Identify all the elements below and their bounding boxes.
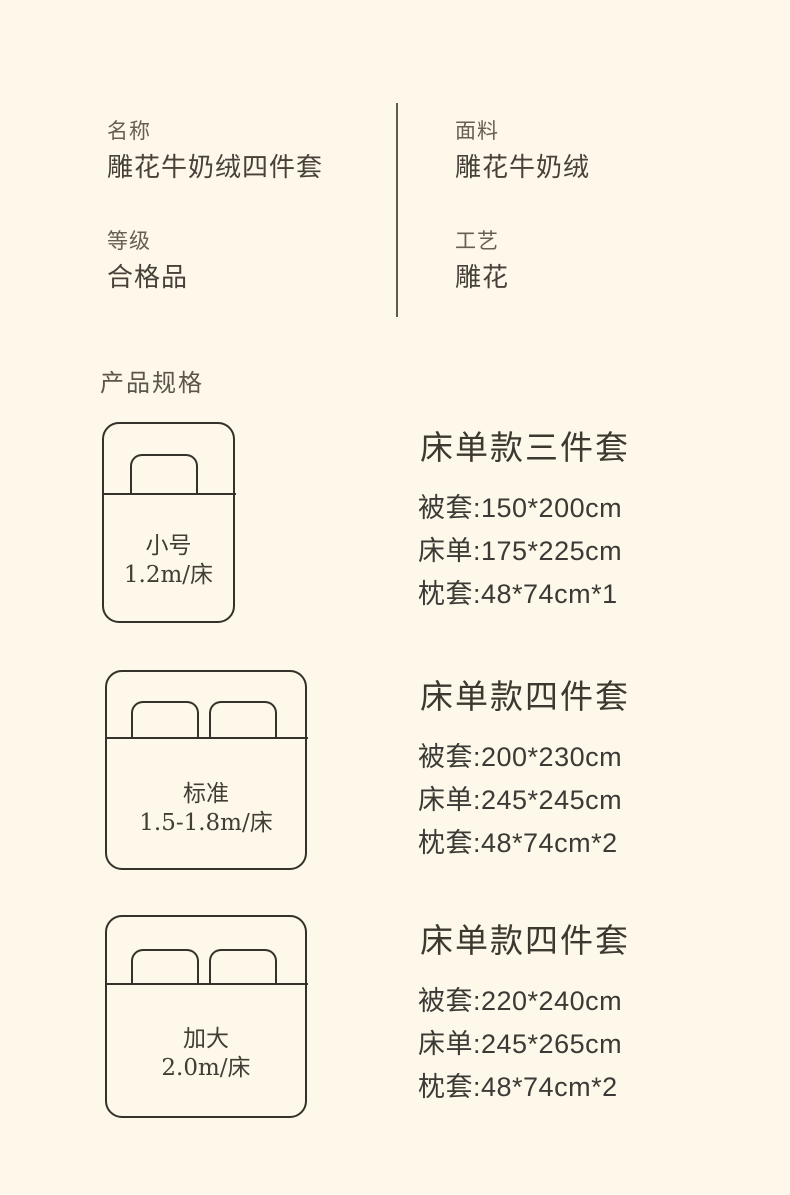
spec-item-duvet: 被套:200*230cm [418,736,632,779]
attribute-column-left: 名称 雕花牛奶绒四件套 等级 合格品 [107,120,323,340]
quilt-line [102,493,236,496]
spec-item-sheet: 床单:175*225cm [418,530,632,573]
spec-item-duvet: 被套:220*240cm [418,980,632,1023]
attr-label: 名称 [107,120,323,143]
attr-value: 合格品 [107,263,323,293]
attr-group-craft: 工艺 雕花 [455,230,590,293]
spec-block-three-piece: 床单款三件套 被套:150*200cm 床单:175*225cm 枕套:48*7… [418,429,632,616]
attr-group-grade: 等级 合格品 [107,230,323,293]
bed-diagram-small: 小号 1.2m/床 [102,422,235,623]
bed-size-spec: 2.0m/床 [107,1054,305,1083]
product-spec-panel: 名称 雕花牛奶绒四件套 等级 合格品 面料 雕花牛奶绒 工艺 雕花 产品规格 小… [0,0,790,1195]
quilt-line [105,737,308,740]
spec-block-four-piece-large: 床单款四件套 被套:220*240cm 床单:245*265cm 枕套:48*7… [418,922,632,1109]
vertical-divider [396,103,398,317]
pillow-shape [131,701,199,739]
attr-group-name: 名称 雕花牛奶绒四件套 [107,120,323,183]
spec-title: 床单款四件套 [418,922,632,960]
pillow-shape [209,701,277,739]
attr-label: 工艺 [455,230,590,253]
bed-size-text: 加大 2.0m/床 [107,1025,305,1083]
bed-size-spec: 1.2m/床 [104,561,233,590]
spec-item-pillowcase: 枕套:48*74cm*1 [418,573,632,616]
bed-size-spec: 1.5-1.8m/床 [107,809,305,838]
pillow-shape [130,454,198,495]
spec-item-sheet: 床单:245*245cm [418,779,632,822]
pillow-shape [209,949,277,985]
pillow-shape [131,949,199,985]
bed-size-text: 小号 1.2m/床 [104,532,233,590]
spec-title: 床单款四件套 [418,678,632,716]
bed-diagram-large: 加大 2.0m/床 [105,915,307,1118]
attr-value: 雕花 [455,263,590,293]
attr-label: 面料 [455,120,590,143]
spec-item-pillowcase: 枕套:48*74cm*2 [418,1066,632,1109]
section-title-product-specs: 产品规格 [100,363,204,398]
spec-title: 床单款三件套 [418,429,632,467]
spec-item-duvet: 被套:150*200cm [418,487,632,530]
quilt-line [105,983,308,986]
bed-diagram-standard: 标准 1.5-1.8m/床 [105,670,307,870]
spec-item-pillowcase: 枕套:48*74cm*2 [418,822,632,865]
spec-item-sheet: 床单:245*265cm [418,1023,632,1066]
bed-size-name: 加大 [107,1025,305,1054]
attr-value: 雕花牛奶绒四件套 [107,153,323,183]
bed-size-text: 标准 1.5-1.8m/床 [107,780,305,838]
attr-label: 等级 [107,230,323,253]
attr-value: 雕花牛奶绒 [455,153,590,183]
bed-size-name: 小号 [104,532,233,561]
spec-block-four-piece-standard: 床单款四件套 被套:200*230cm 床单:245*245cm 枕套:48*7… [418,678,632,865]
attr-group-fabric: 面料 雕花牛奶绒 [455,120,590,183]
bed-size-name: 标准 [107,780,305,809]
attribute-column-right: 面料 雕花牛奶绒 工艺 雕花 [455,120,590,340]
